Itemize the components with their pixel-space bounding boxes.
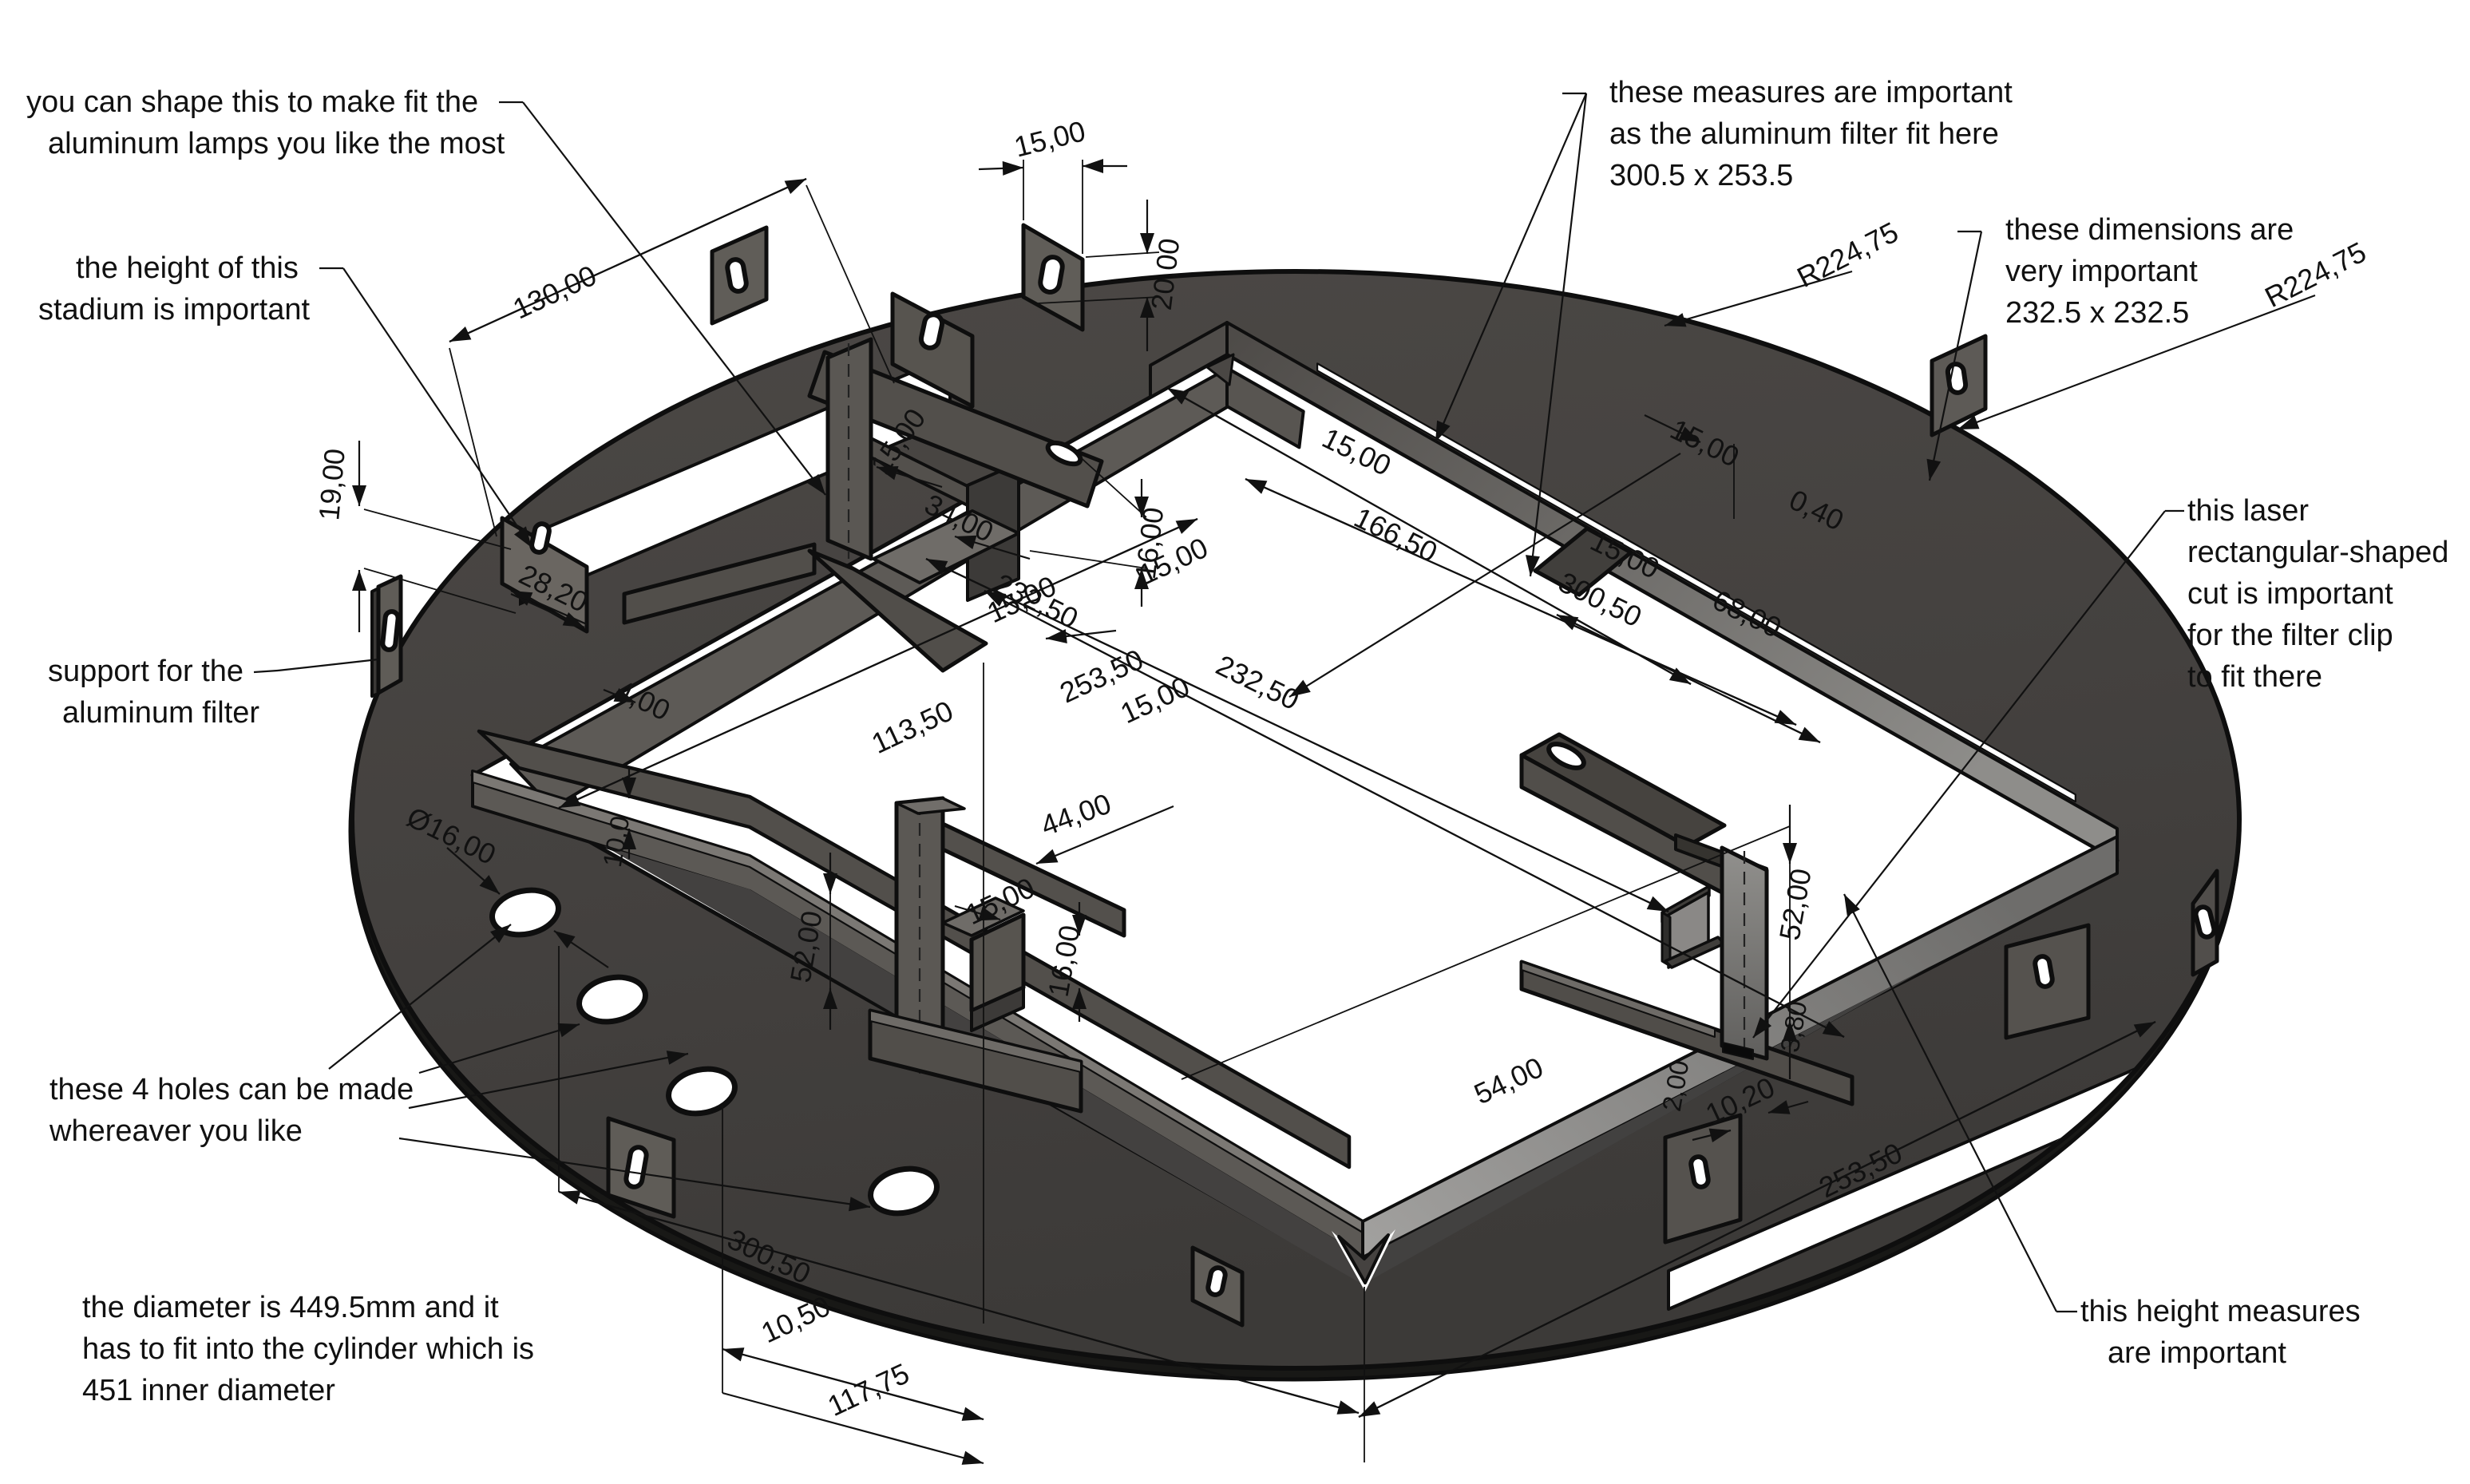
svg-text:aluminum filter: aluminum filter [62,696,259,730]
svg-text:support for the: support for the [48,655,243,688]
svg-text:300.5 x 253.5: 300.5 x 253.5 [1609,159,1793,192]
svg-text:451 inner diameter: 451 inner diameter [82,1374,335,1407]
svg-text:has to fit into the cylinder w: has to fit into the cylinder which is [82,1332,534,1366]
svg-text:the height of this: the height of this [76,251,299,285]
svg-text:very important: very important [2005,255,2198,288]
svg-text:for the filter clip: for the filter clip [2187,619,2393,652]
svg-text:the diameter is 449.5mm and it: the diameter is 449.5mm and it [82,1291,499,1324]
svg-text:whereaver you like: whereaver you like [49,1114,303,1148]
svg-text:as the aluminum filter fit her: as the aluminum filter fit here [1609,117,1999,151]
svg-text:you can shape this to make fit: you can shape this to make fit the [26,85,478,119]
svg-text:these dimensions are: these dimensions are [2005,213,2294,247]
svg-text:rectangular-shaped: rectangular-shaped [2187,536,2448,569]
svg-text:this laser: this laser [2187,494,2309,528]
svg-text:to fit there: to fit there [2187,660,2322,694]
svg-text:19,00: 19,00 [312,447,351,521]
svg-text:cut is important: cut is important [2187,577,2393,611]
svg-text:this height measures: this height measures [2080,1295,2361,1328]
svg-text:these 4 holes can be made: these 4 holes can be made [49,1073,414,1106]
svg-text:aluminum lamps you like the mo: aluminum lamps you like the most [48,127,505,160]
svg-text:stadium is important: stadium is important [38,293,310,326]
svg-text:these measures are important: these measures are important [1609,76,2013,109]
svg-text:232.5 x 232.5: 232.5 x 232.5 [2005,296,2189,330]
svg-text:are important: are important [2108,1336,2286,1370]
